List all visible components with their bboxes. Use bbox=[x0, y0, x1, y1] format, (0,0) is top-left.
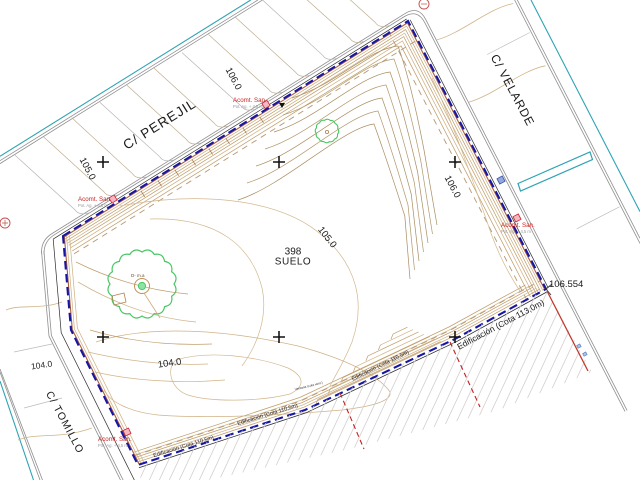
svg-text:104.0: 104.0 bbox=[30, 359, 53, 372]
svg-text:Acomt. San.: Acomt. San. bbox=[98, 436, 132, 443]
svg-text:106.0: 106.0 bbox=[442, 174, 463, 200]
svg-text:105.0: 105.0 bbox=[315, 225, 338, 251]
svg-text:Pot. Ag. + 4,5 m: Pot. Ag. + 4,5 m bbox=[233, 104, 263, 109]
svg-text:Pot. Ag. + 4,5 m: Pot. Ag. + 4,5 m bbox=[78, 203, 108, 208]
svg-text:106.554: 106.554 bbox=[549, 279, 583, 290]
svg-text:Ventana (cota vent.): Ventana (cota vent.) bbox=[294, 381, 323, 392]
svg-text:Acomt. San.: Acomt. San. bbox=[501, 222, 535, 229]
svg-text:106.0: 106.0 bbox=[223, 66, 244, 92]
svg-text:Pot. Ag. + 4,5 m: Pot. Ag. + 4,5 m bbox=[501, 229, 531, 234]
svg-text:C/ TOMILLO: C/ TOMILLO bbox=[43, 389, 86, 456]
svg-text:105.0: 105.0 bbox=[77, 156, 98, 182]
svg-text:Pot. Ag. + 4,5 m: Pot. Ag. + 4,5 m bbox=[98, 443, 128, 448]
svg-text:104.0: 104.0 bbox=[157, 356, 182, 370]
svg-text:SUELO: SUELO bbox=[275, 257, 311, 268]
svg-text:C/ PEREJIL: C/ PEREJIL bbox=[120, 96, 198, 153]
svg-text:Acomt. San.: Acomt. San. bbox=[233, 97, 267, 104]
svg-text:D- m.a: D- m.a bbox=[131, 273, 145, 278]
svg-text:Acomt. San.: Acomt. San. bbox=[78, 196, 112, 203]
